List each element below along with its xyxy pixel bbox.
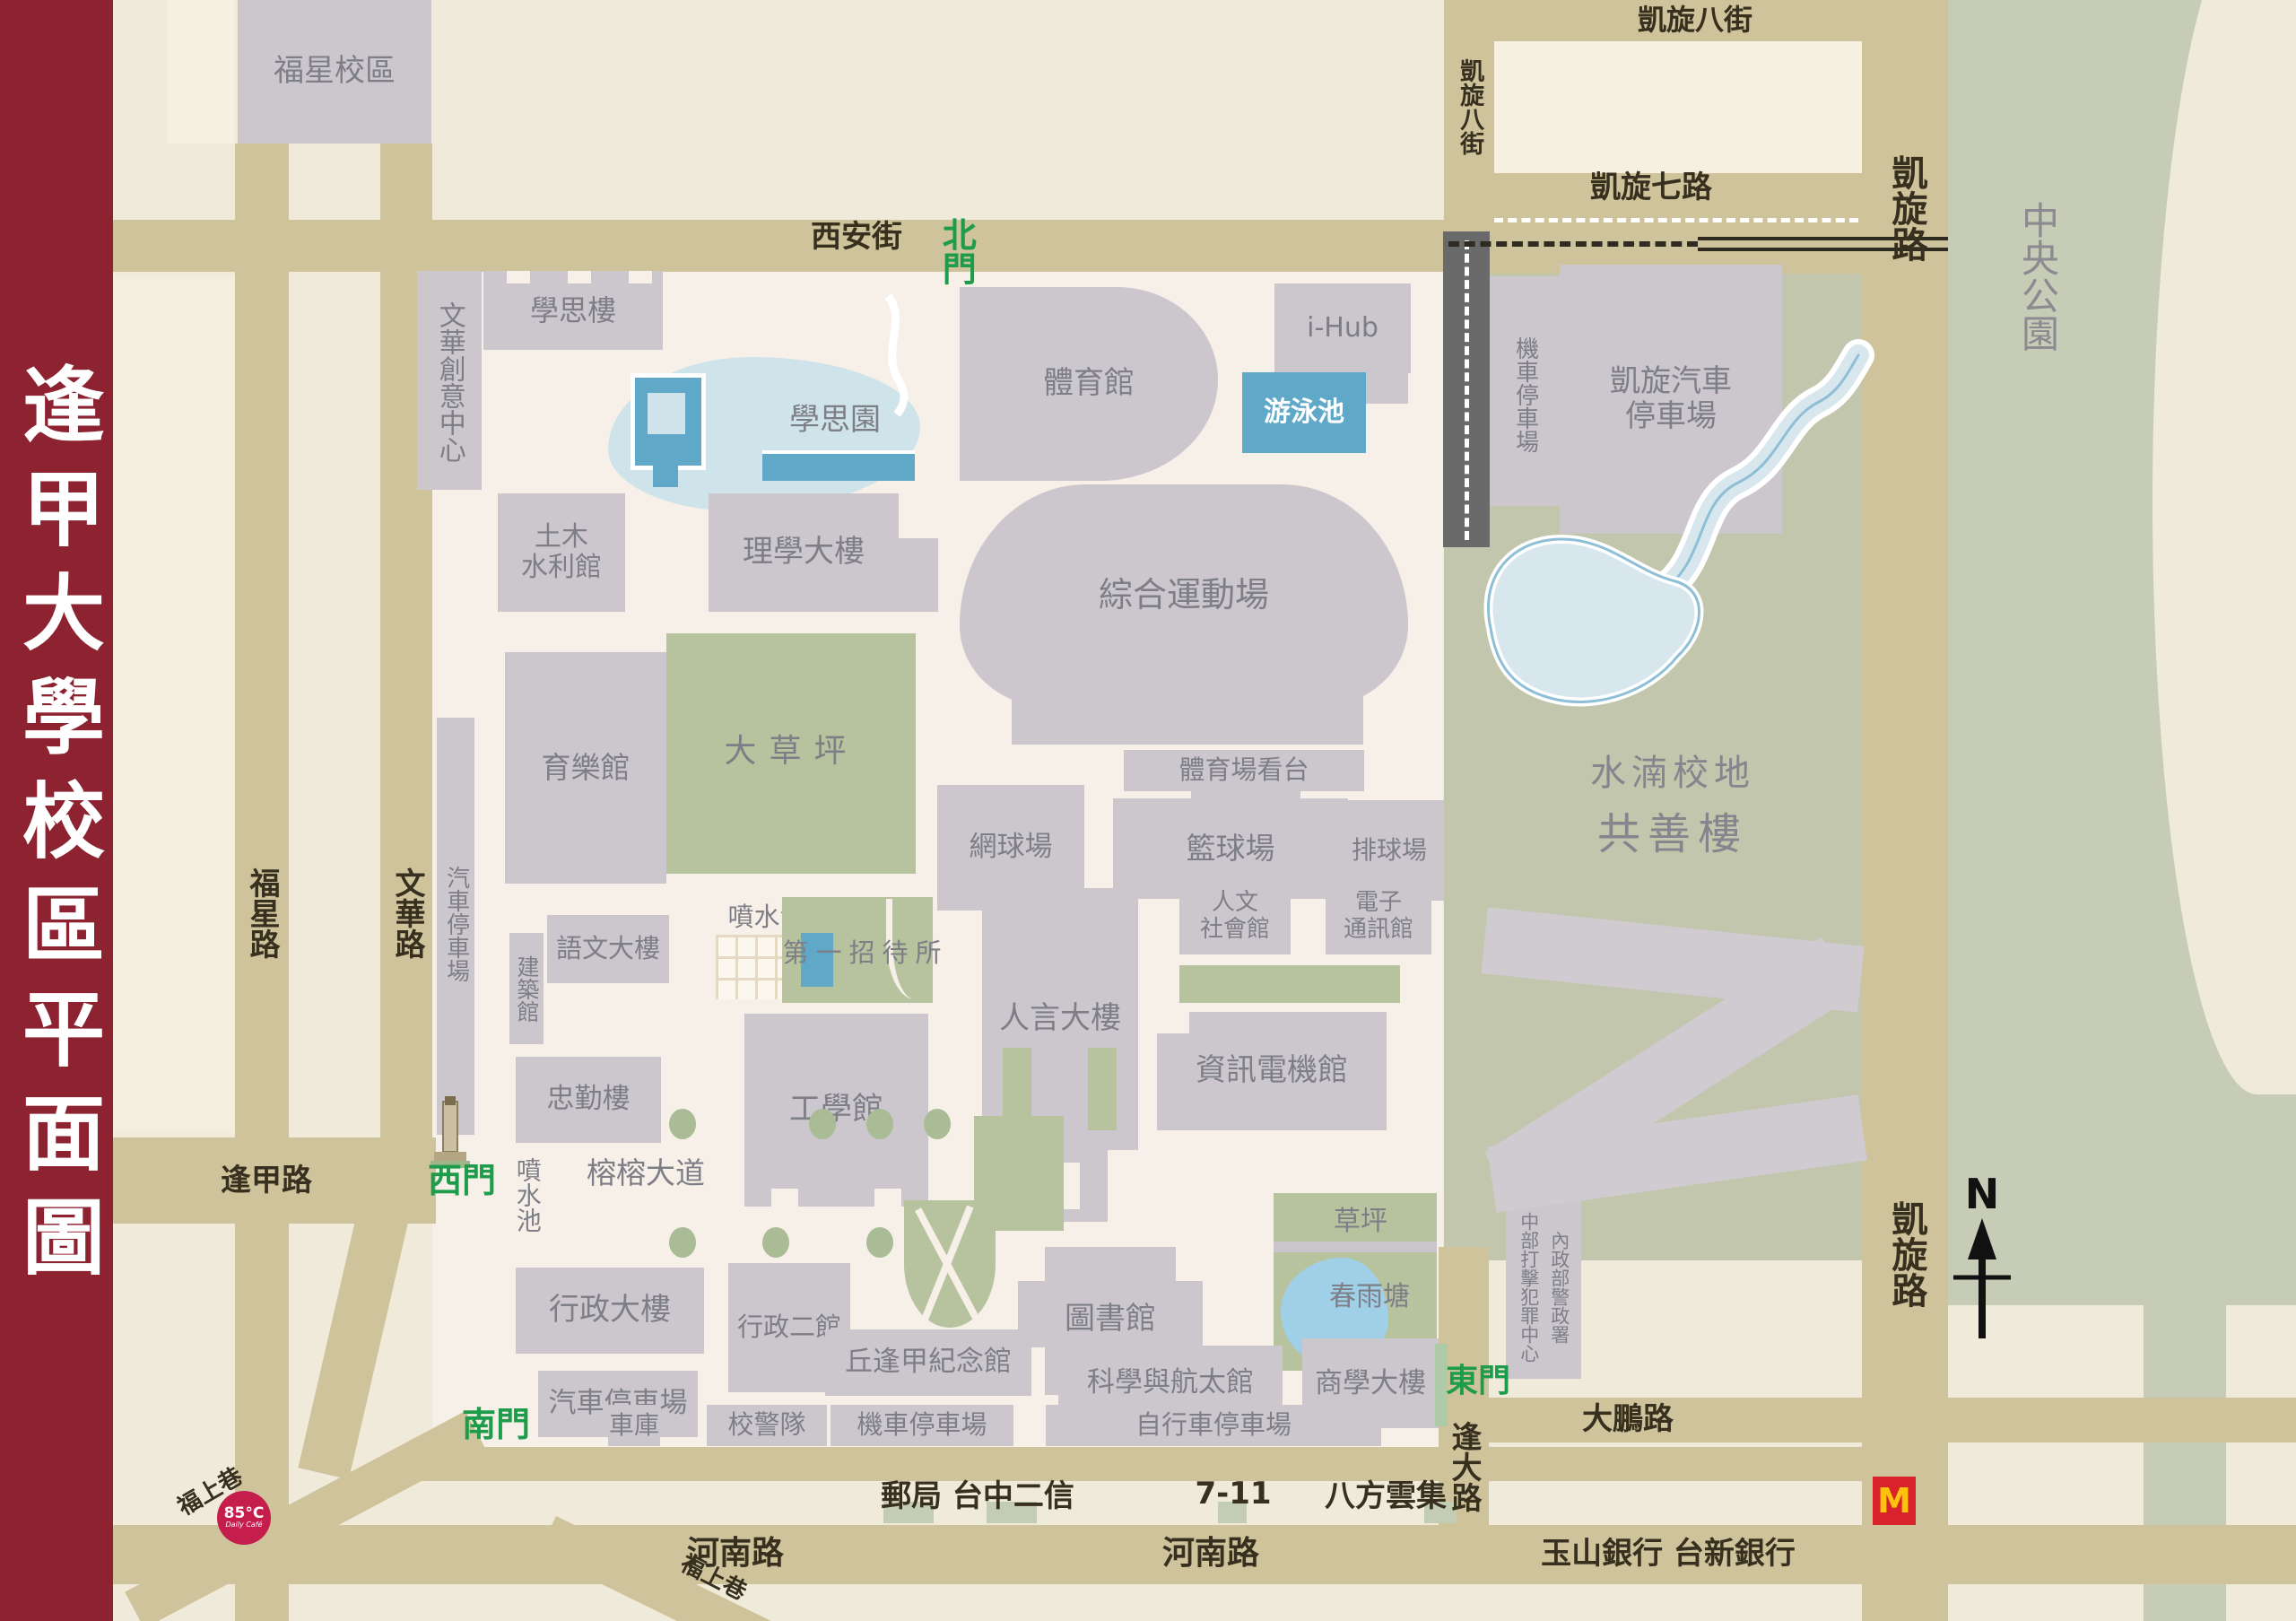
gongshan-label: 共善樓 (1534, 809, 1812, 861)
banks-label: 玉山銀行 台新銀行 (1525, 1536, 1812, 1572)
garden-pool-stem (653, 466, 678, 487)
renyan-courtyard (1088, 1048, 1117, 1130)
map-title: 逢甲大學校區平面圖 (7, 345, 106, 1314)
road-label-wenhua: 文華路 (389, 850, 425, 976)
compass-n-label: N (1953, 1172, 2011, 1218)
green-bar (1179, 965, 1400, 1003)
library-wing (1176, 1281, 1203, 1347)
lawn-label: 草坪 (1311, 1206, 1410, 1238)
fuxing-campus-block: 福星校區 (238, 0, 431, 144)
tree-icon (924, 1109, 951, 1139)
tree-icon (669, 1109, 696, 1139)
decor-notch (629, 271, 652, 283)
police-crime-center-col2: 中部打擊犯罪中心 (1514, 1202, 1543, 1373)
kaixuan7-center-dashes (1494, 218, 1858, 222)
engineering-hall: 工學館 (744, 1014, 928, 1207)
spring-pond-label: 春雨塘 (1311, 1281, 1428, 1313)
swimming-pool-label: 游泳池 (1242, 372, 1366, 453)
civil-hydraulic-hall: 土木水利館 (498, 493, 625, 612)
bafang-label: 八方雲集 (1305, 1478, 1466, 1514)
info-ee-hall: 資訊電機館 (1157, 1012, 1387, 1130)
road-label-fengda: 逢大路 (1446, 1408, 1482, 1525)
stadium-stands: 體育場看台 (1124, 750, 1364, 791)
science-hall: 理學大樓 (709, 493, 899, 612)
qiu-memorial: 丘逢甲紀念館 (825, 1329, 1031, 1396)
gate-east-label: 東門 (1440, 1364, 1516, 1399)
garden-pool-inner (648, 393, 685, 434)
kaixuan-car-park: 凱旋汽車停車場 (1560, 265, 1782, 534)
dark-road-dashes (1465, 240, 1469, 540)
science-hall-annex (899, 538, 938, 612)
wenhua-creative-center-label: 文華創意中心 (428, 283, 471, 481)
gate-north-label: 北門 (936, 210, 976, 292)
road-label-xian-an: 西安街 (789, 219, 924, 255)
xuesi-garden-label: 學思園 (768, 402, 902, 438)
road-label-fuxing: 福星路 (244, 850, 280, 976)
architecture-hall-label: 建築館 (511, 938, 542, 1039)
garage: 車庫 (608, 1405, 660, 1446)
gate-west-label: 西門 (422, 1163, 502, 1198)
fountain-south-label: 噴水池 (509, 1132, 545, 1258)
zhongqin-hall: 忠勤樓 (516, 1057, 661, 1143)
road-label-fengjia: 逢甲路 (199, 1163, 334, 1198)
decor-notch (1157, 1012, 1189, 1033)
humanities-social-hall: 人文社會館 (1179, 879, 1291, 954)
decor-notch (771, 1189, 798, 1207)
railway-dashes (1448, 241, 1698, 247)
tree-icon (866, 1227, 893, 1258)
city-block (113, 276, 235, 1133)
campus-police-block: 校警隊 (707, 1405, 827, 1446)
stadium-base (1012, 695, 1363, 745)
guesthouse-label: 第一招待所 (771, 937, 960, 969)
road-label-henan-2: 河南路 (1144, 1536, 1278, 1572)
gate-south-label: 南門 (456, 1407, 536, 1442)
mcdonalds-icon: M (1873, 1477, 1916, 1525)
library-label: 圖書館 (1045, 1299, 1176, 1338)
garden-pool-bar (762, 450, 915, 481)
ihub: i-Hub (1274, 283, 1411, 373)
electronics-comm-hall: 電子通訊館 (1326, 879, 1431, 954)
stadium: 綜合運動場 (960, 484, 1408, 707)
tree-icon (809, 1109, 836, 1139)
road-label-dapeng: 大鵬路 (1561, 1401, 1695, 1437)
yule-hall: 育樂館 (505, 652, 666, 884)
moto-park-south: 機車停車場 (831, 1405, 1013, 1446)
rongrong-avenue-label: 榕榕大道 (565, 1155, 726, 1191)
road-label-kaixuan8-h: 凱旋八街 (1614, 4, 1776, 38)
central-park-label: 中央公園 (2009, 178, 2066, 375)
city-block (167, 0, 235, 144)
cafe85-icon: 85°C Daily Café (217, 1491, 271, 1545)
police-crime-center-col1: 內政部警政署 (1544, 1202, 1573, 1373)
lawn-band (1274, 1242, 1437, 1252)
moto-park-east-label: 機車停車場 (1492, 296, 1558, 493)
decor-notch (507, 271, 530, 283)
decor-notch (874, 1189, 901, 1207)
admin-building: 行政大樓 (516, 1268, 704, 1354)
tree-icon (866, 1109, 893, 1139)
road-label-kaixuan8-v: 凱旋八街 (1453, 45, 1485, 169)
grass-field-label: 大草坪 (695, 732, 888, 771)
bike-park: 自行車停車場 (1046, 1405, 1381, 1446)
city-block (1494, 41, 1862, 173)
decor-notch (568, 271, 591, 283)
tree-icon (762, 1227, 789, 1258)
post-bank-label: 郵局 台中二信 (843, 1478, 1112, 1514)
road-campus-south (417, 1447, 1862, 1481)
road-label-kaixuan-n: 凱旋路 (1878, 145, 1934, 271)
seven-eleven-label: 7-11 (1184, 1476, 1283, 1512)
gymnasium: 體育館 (960, 287, 1218, 481)
campus-map: 逢甲大學校區平面圖 福星校區 文華創意中心 學思樓 學思園 土木水利館 理學大樓… (0, 0, 2296, 1621)
car-park-west-label: 汽車停車場 (439, 789, 473, 1059)
road-label-kaixuan7: 凱旋七路 (1575, 170, 1727, 205)
tree-icon (669, 1227, 696, 1258)
shuinan-label: 水湳校地 (1525, 752, 1821, 795)
language-hall: 語文大樓 (547, 915, 669, 983)
road-label-kaixuan-s: 凱旋路 (1878, 1191, 1934, 1317)
